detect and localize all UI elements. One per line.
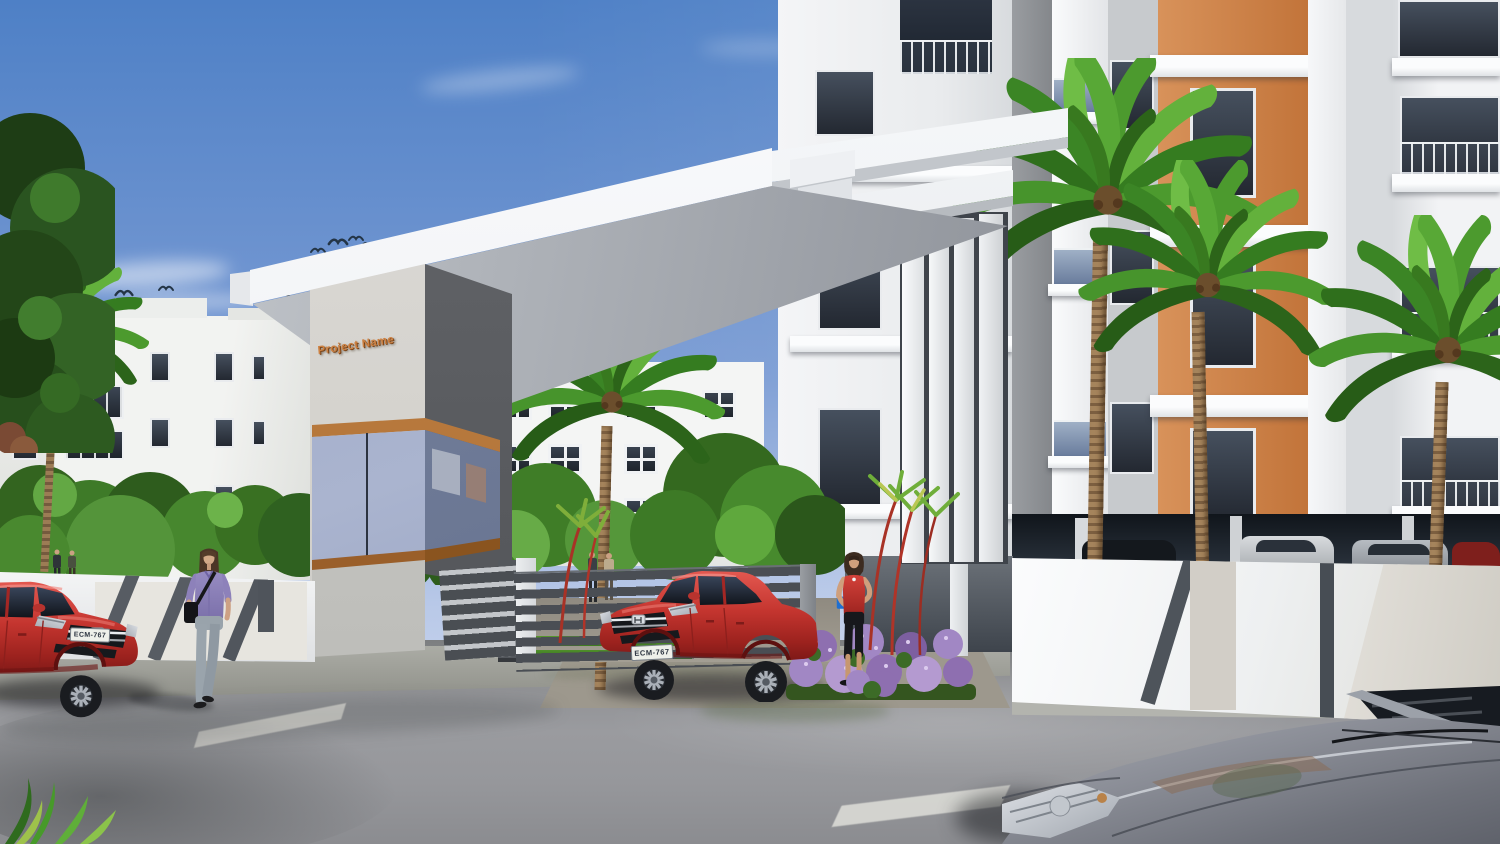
flower-front-tuft: [842, 664, 902, 698]
cabin-glass-reflection: [432, 449, 460, 496]
parked-car-window: [1368, 544, 1430, 555]
wall-slot: [258, 580, 274, 632]
window: [818, 235, 882, 330]
render-scene: Project Name: [0, 0, 1500, 844]
car-red-left: [0, 566, 144, 724]
palm-tree: [452, 282, 772, 532]
gate-fin: [979, 214, 1003, 562]
car-foreground: [1002, 686, 1500, 844]
entrance-stairs: [439, 565, 525, 660]
balcony-railing: [1400, 142, 1500, 176]
cabin-glass-mullion: [366, 433, 368, 559]
palm-tree: [1278, 215, 1500, 485]
license-plate: ECM-767: [631, 644, 674, 661]
parked-car-window: [1256, 540, 1316, 552]
pedestrian-walking: [182, 544, 236, 716]
window: [214, 352, 234, 382]
window: [1398, 0, 1500, 58]
moss-stain: [700, 700, 890, 722]
floor-slab: [1392, 58, 1500, 76]
window: [815, 70, 875, 136]
car-red-center: [594, 556, 826, 702]
cabin-glass-reflection: [466, 463, 486, 503]
window: [252, 355, 266, 381]
foreground-plant: [0, 772, 150, 844]
license-plate: ECM-767: [70, 627, 110, 642]
floor-slab: [1392, 174, 1500, 192]
left-building-parapet: [228, 308, 290, 320]
foreground-tree: [0, 108, 115, 453]
window: [1110, 402, 1154, 474]
